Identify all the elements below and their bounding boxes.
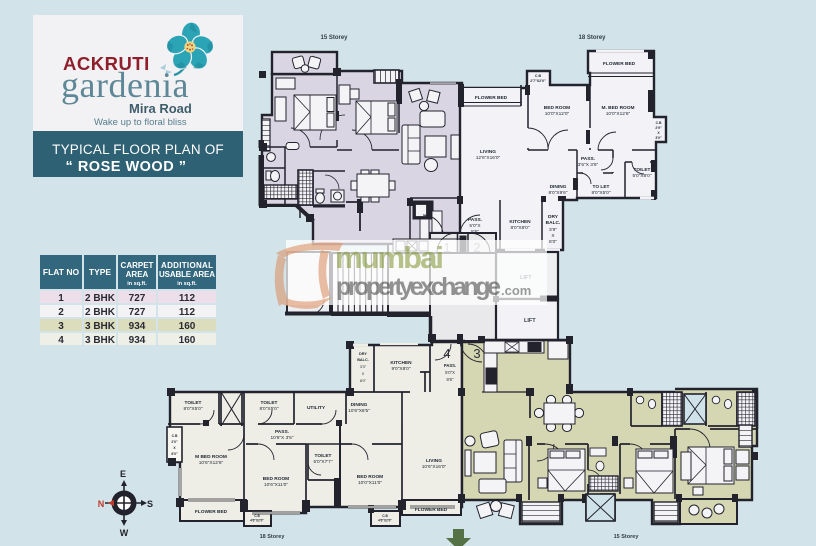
svg-text:.com: .com [501, 283, 531, 298]
svg-text:1: 1 [58, 293, 64, 304]
svg-text:10'6"X11'0": 10'6"X11'0" [264, 482, 288, 488]
svg-text:18 Storey: 18 Storey [578, 35, 606, 41]
svg-text:934: 934 [129, 321, 146, 332]
svg-text:USABLE AREA: USABLE AREA [159, 270, 215, 279]
svg-text:2'9": 2'9" [655, 126, 662, 130]
svg-text:DINING: DINING [550, 184, 567, 190]
svg-text:6'0": 6'0" [171, 452, 178, 456]
svg-text:4'6"X2'0": 4'6"X2'0" [250, 519, 264, 523]
svg-text:18 Storey: 18 Storey [260, 534, 286, 540]
svg-text:5'0"X: 5'0"X [445, 370, 455, 375]
svg-text:KITCHEN: KITCHEN [509, 219, 531, 225]
svg-text:TOILET: TOILET [634, 167, 651, 173]
svg-text:UTILITY: UTILITY [307, 405, 326, 411]
svg-text:E: E [120, 469, 126, 479]
svg-text:FLAT NO: FLAT NO [43, 267, 80, 277]
svg-text:Mira Road: Mira Road [129, 101, 192, 116]
svg-text:4: 4 [58, 335, 64, 346]
svg-text:PASS.: PASS. [468, 217, 482, 223]
svg-text:112: 112 [179, 293, 196, 304]
svg-text:BALC.: BALC. [546, 220, 561, 226]
svg-text:DRY: DRY [359, 352, 367, 356]
svg-text:FLOWER BED: FLOWER BED [603, 61, 636, 67]
svg-text:C.B: C.B [172, 434, 178, 438]
svg-text:15 Storey: 15 Storey [320, 35, 348, 41]
svg-text:2: 2 [58, 307, 64, 318]
svg-text:FLOWER BED: FLOWER BED [415, 507, 448, 513]
svg-text:FLOWER BED: FLOWER BED [475, 95, 508, 101]
svg-text:3'9": 3'9" [549, 227, 557, 233]
svg-text:2'7"X2'0": 2'7"X2'0" [530, 79, 546, 83]
svg-text:8'6": 8'6" [447, 377, 454, 382]
svg-text:propertyexchange: propertyexchange [336, 273, 501, 301]
svg-text:FLOWER BED: FLOWER BED [195, 509, 228, 515]
svg-text:8'0"X5'0": 8'0"X5'0" [259, 406, 278, 412]
svg-text:M BED ROOM: M BED ROOM [195, 454, 227, 460]
svg-text:8'0": 8'0" [549, 239, 557, 245]
svg-text:9'0"X8'0": 9'0"X8'0" [391, 366, 410, 372]
svg-text:in sq.ft.: in sq.ft. [127, 281, 147, 287]
svg-text:5'0"X: 5'0"X [469, 223, 481, 229]
svg-text:BED ROOM: BED ROOM [544, 105, 570, 111]
svg-text:DRY: DRY [548, 214, 559, 220]
svg-text:112: 112 [179, 307, 196, 318]
svg-text:4'6"X2'0": 4'6"X2'0" [378, 519, 392, 523]
svg-text:10'6"X8'5": 10'6"X8'5" [348, 408, 370, 414]
svg-text:727: 727 [129, 293, 146, 304]
svg-text:TYPICAL FLOOR PLAN OF: TYPICAL FLOOR PLAN OF [52, 142, 224, 157]
svg-text:N: N [98, 499, 105, 509]
svg-text:DINING: DINING [351, 402, 368, 408]
svg-text:5'0"X8'0": 5'0"X8'0" [632, 173, 651, 179]
svg-text:TOILET: TOILET [185, 400, 202, 406]
svg-text:ADDITIONAL: ADDITIONAL [161, 261, 213, 270]
svg-text:10'0"X12'0": 10'0"X12'0" [545, 111, 570, 117]
svg-text:PASS.: PASS. [581, 156, 595, 162]
svg-text:gardenia: gardenia [61, 65, 189, 105]
svg-text:PASS.: PASS. [275, 429, 289, 435]
svg-text:934: 934 [129, 335, 146, 346]
svg-text:S: S [147, 499, 153, 509]
svg-text:BED ROOM: BED ROOM [263, 476, 289, 482]
svg-text:10'6"X16'0": 10'6"X16'0" [422, 464, 447, 470]
svg-text:10'6"X12'6": 10'6"X12'6" [199, 460, 224, 466]
svg-text:AREA: AREA [126, 270, 149, 279]
svg-text:W: W [120, 528, 129, 538]
svg-text:PASS.: PASS. [444, 363, 456, 368]
svg-text:X: X [362, 372, 365, 376]
svg-text:3'3": 3'3" [360, 365, 367, 369]
svg-text:3'0": 3'0" [655, 136, 662, 140]
svg-text:2 BHK: 2 BHK [85, 293, 116, 304]
svg-text:8'0": 8'0" [360, 379, 367, 383]
svg-text:in sq.ft.: in sq.ft. [177, 281, 197, 287]
svg-text:mumbai: mumbai [335, 240, 443, 275]
svg-text:3 BHK: 3 BHK [85, 335, 116, 346]
svg-text:BED ROOM: BED ROOM [357, 474, 383, 480]
svg-text:TYPE: TYPE [89, 267, 112, 277]
svg-text:3 BHK: 3 BHK [85, 321, 116, 332]
svg-text:LIFT: LIFT [524, 318, 536, 324]
svg-text:15 Storey: 15 Storey [614, 534, 640, 540]
svg-text:LIVING: LIVING [426, 458, 442, 464]
svg-text:CARPET: CARPET [121, 261, 154, 270]
svg-text:“ ROSE WOOD ”: “ ROSE WOOD ” [66, 159, 187, 175]
svg-text:C.B: C.B [254, 514, 260, 518]
svg-text:10'0"X12'6": 10'0"X12'6" [606, 111, 631, 117]
svg-text:5'0"X7'7": 5'0"X7'7" [313, 459, 332, 465]
svg-text:12'6"X16'0": 12'6"X16'0" [476, 155, 501, 161]
svg-text:10'6"X 3'5": 10'6"X 3'5" [270, 435, 293, 441]
svg-text:4: 4 [443, 346, 450, 361]
svg-text:LIVING: LIVING [480, 149, 496, 155]
svg-text:C.B: C.B [382, 514, 388, 518]
svg-text:8'0"X8'0": 8'0"X8'0" [510, 225, 529, 231]
svg-text:M. BED ROOM: M. BED ROOM [601, 105, 634, 111]
svg-text:C.B: C.B [535, 74, 542, 78]
svg-text:TOILET: TOILET [315, 453, 332, 459]
svg-text:2 BHK: 2 BHK [85, 307, 116, 318]
svg-text:C.B: C.B [656, 121, 662, 125]
svg-text:BALC.: BALC. [357, 358, 369, 362]
svg-text:TOILET: TOILET [261, 400, 278, 406]
svg-text:3: 3 [58, 321, 64, 332]
svg-text:8'0"X5'0": 8'0"X5'0" [183, 406, 202, 412]
svg-text:KITCHEN: KITCHEN [390, 360, 412, 366]
svg-text:TO LET: TO LET [593, 184, 610, 190]
svg-text:10'0"X11'0": 10'0"X11'0" [358, 480, 382, 486]
svg-text:727: 727 [129, 307, 146, 318]
svg-text:3'5"X 3'6": 3'5"X 3'6" [578, 162, 599, 168]
svg-text:2'0": 2'0" [171, 440, 178, 444]
svg-text:8'0"X5'0": 8'0"X5'0" [591, 190, 610, 196]
svg-text:160: 160 [179, 321, 196, 332]
svg-text:160: 160 [179, 335, 196, 346]
svg-text:3: 3 [473, 346, 480, 361]
svg-text:Wake up to floral bliss: Wake up to floral bliss [94, 117, 187, 128]
svg-text:8'0"X9'6": 8'0"X9'6" [548, 190, 567, 196]
